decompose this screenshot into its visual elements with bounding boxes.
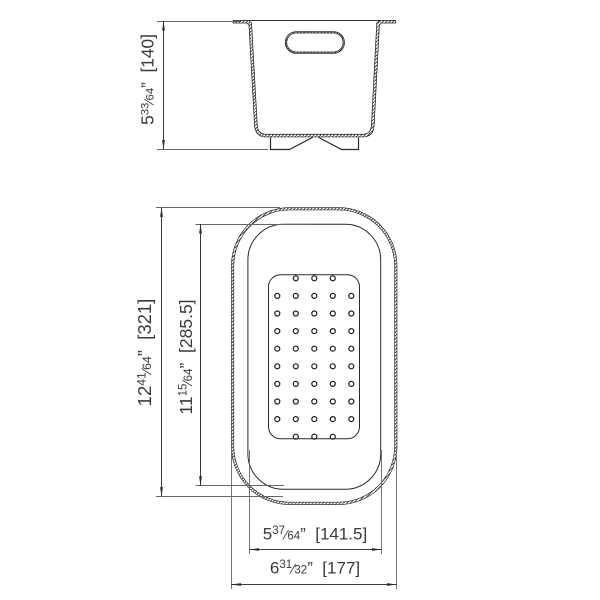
svg-text:1115⁄64” [285.5]: 1115⁄64” [285.5] bbox=[176, 299, 196, 414]
svg-text:1241⁄64” [321]: 1241⁄64” [321] bbox=[134, 299, 155, 407]
